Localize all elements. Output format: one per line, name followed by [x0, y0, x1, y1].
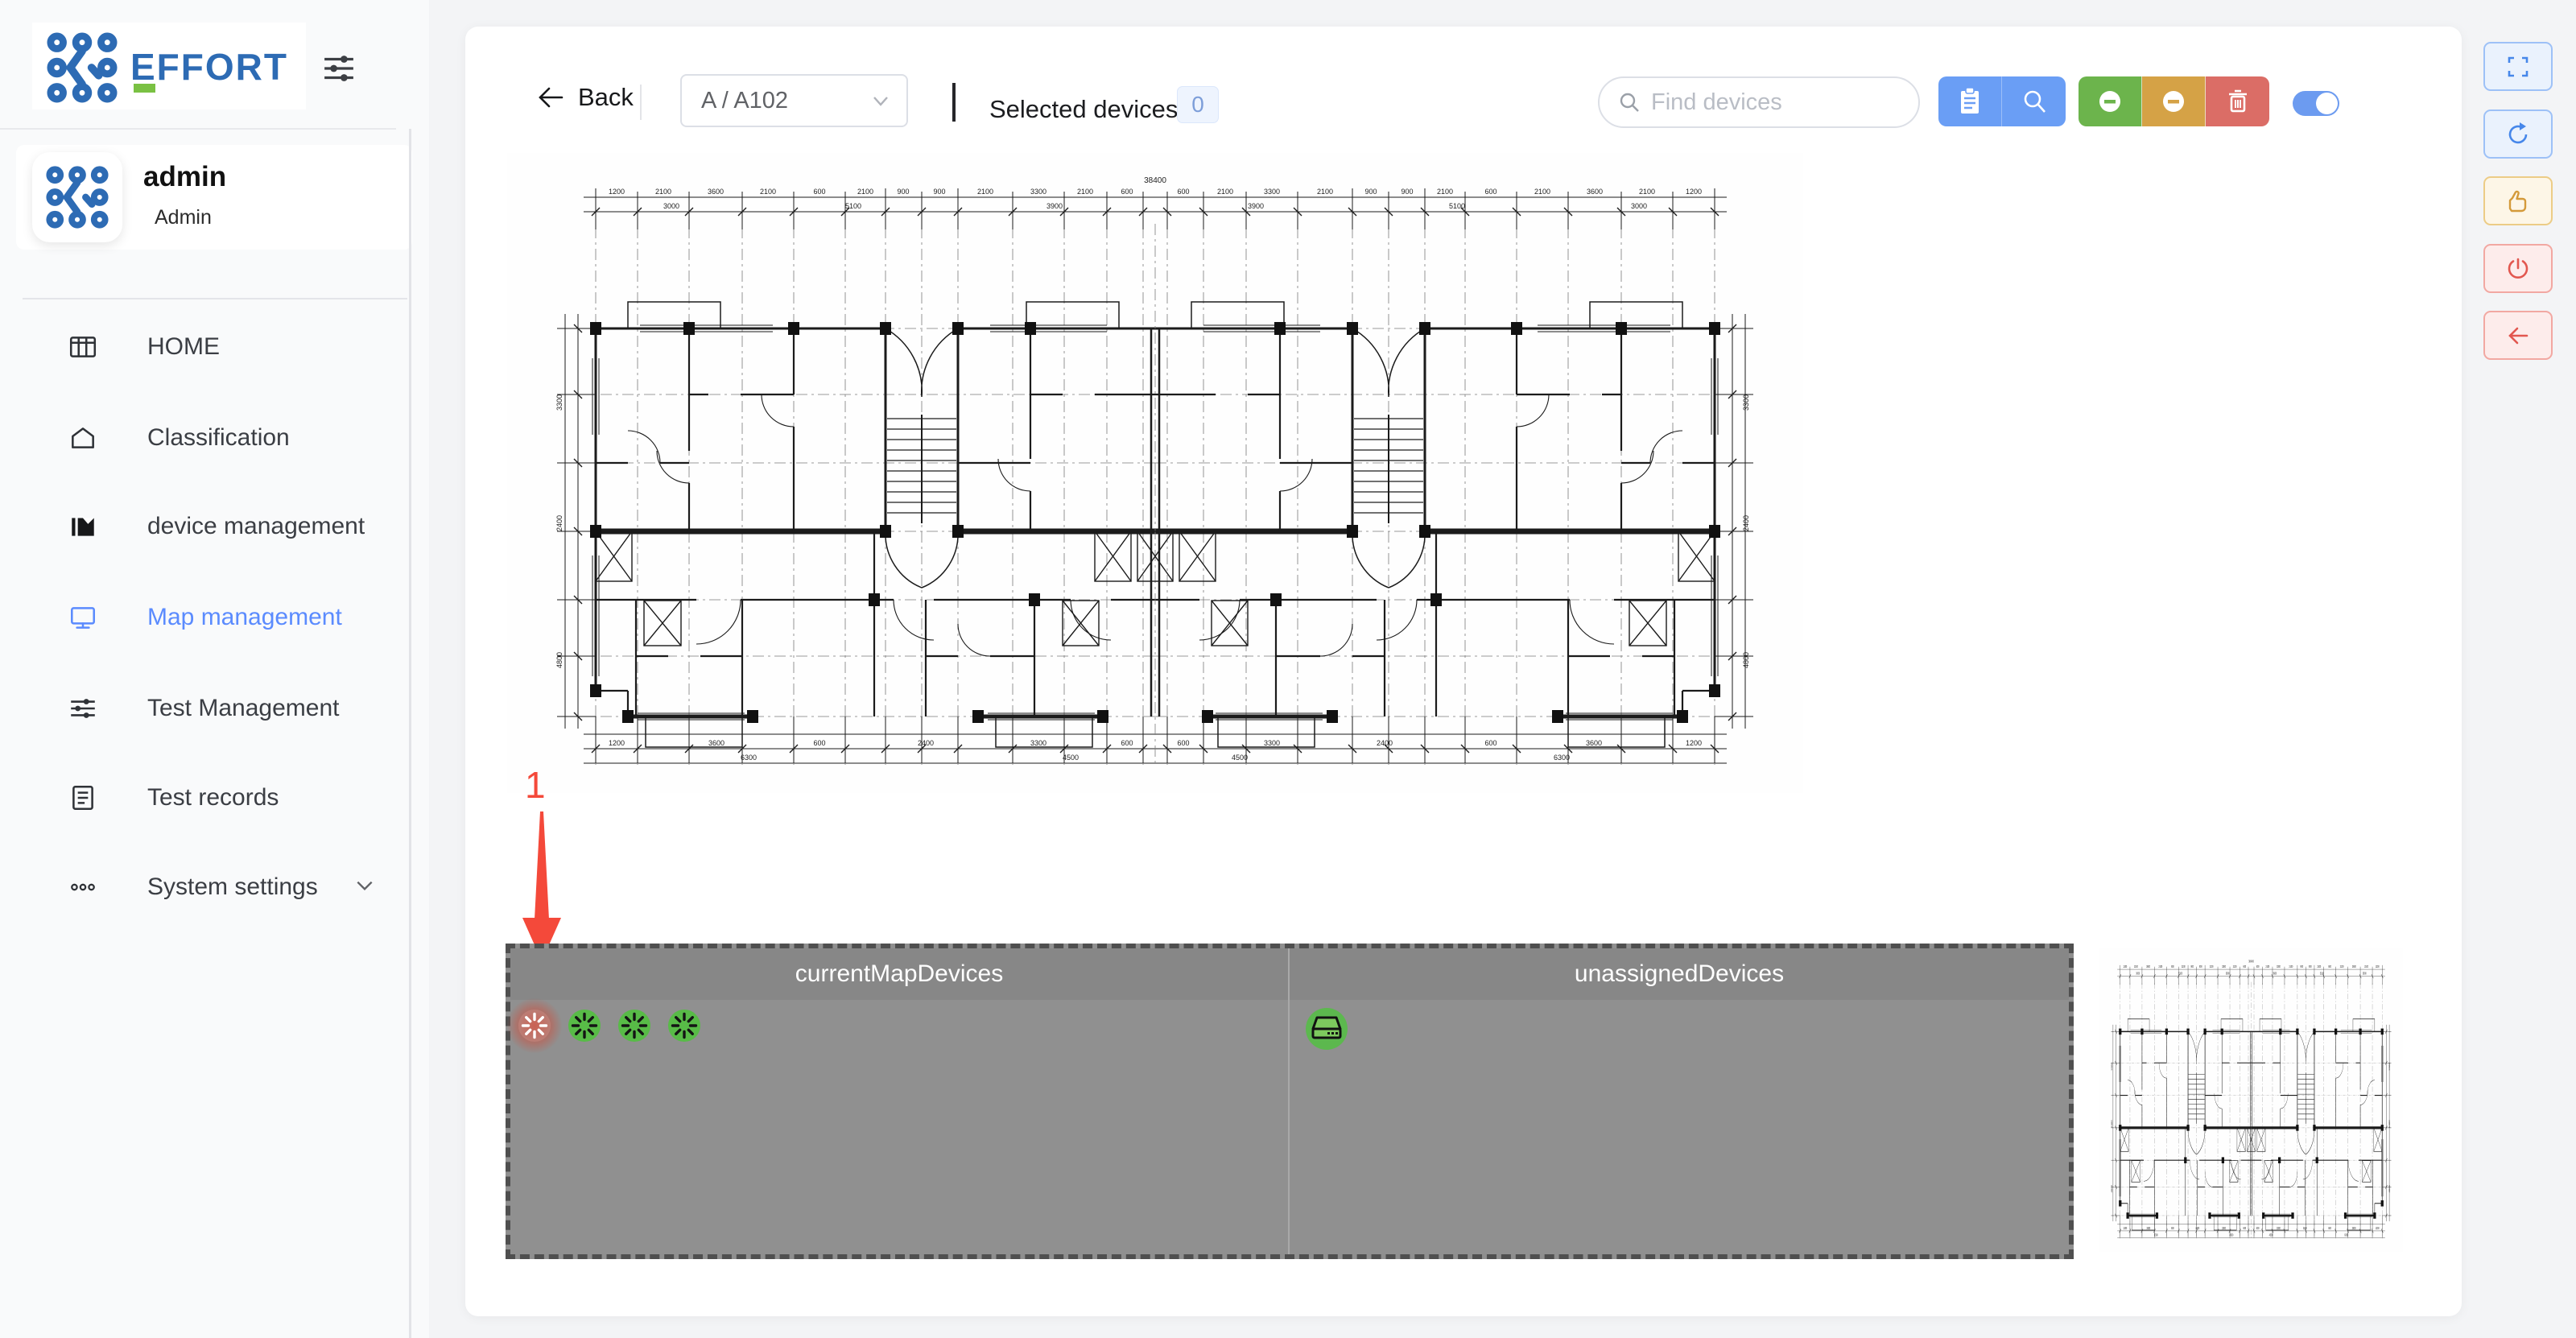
- minus-circle-icon: [2095, 87, 2124, 116]
- hard-drive-icon: [1308, 1013, 1345, 1045]
- sidebar-item-label: device management: [147, 513, 365, 540]
- hand-select-button[interactable]: [2483, 176, 2553, 225]
- power-icon: [2504, 254, 2533, 283]
- logo-text: EFFORT: [130, 45, 288, 89]
- spinner-icon: [668, 1010, 700, 1042]
- spinner-icon: [518, 1010, 551, 1042]
- sidebar-item-label: Map management: [147, 604, 342, 631]
- back-button[interactable]: Back: [535, 83, 634, 112]
- chevron-down-icon: [354, 878, 375, 897]
- clipboard-icon: [1956, 86, 1984, 117]
- ellipsis-icon: [67, 871, 99, 903]
- arrow-left-icon: [535, 84, 565, 111]
- device-drop-zone: currentMapDevices unassignedDevic: [506, 944, 2074, 1259]
- sidebar-item-label: HOME: [147, 333, 220, 361]
- sidebar-item-system-settings[interactable]: System settings: [0, 858, 407, 916]
- screen: { "sidebar": { "logo_text": "EFFORT", "u…: [0, 0, 2576, 1338]
- power-button[interactable]: [2483, 244, 2553, 293]
- user-role: Admin: [155, 206, 212, 229]
- toolbar-divider: [640, 85, 642, 120]
- exit-back-button[interactable]: [2483, 311, 2553, 360]
- effort-logo-icon: [47, 32, 118, 103]
- toggle-knob: [2316, 93, 2338, 114]
- app-logo[interactable]: EFFORT: [32, 23, 306, 109]
- unassigned-devices-panel[interactable]: unassignedDevices: [1290, 948, 2069, 1254]
- chevron-down-icon: [871, 95, 890, 112]
- sidebar-item-test-records[interactable]: Test records: [0, 769, 407, 827]
- sidebar-item-label: Test records: [147, 784, 279, 811]
- search-input[interactable]: [1651, 89, 1893, 116]
- table-grid-icon: [67, 331, 99, 363]
- avatar-logo-icon: [46, 166, 109, 229]
- fullscreen-icon: [2504, 52, 2533, 81]
- device-chart-icon: [67, 510, 99, 543]
- sidebar-item-classification[interactable]: Classification: [0, 409, 407, 467]
- delete-button[interactable]: [2206, 76, 2269, 126]
- logo-green-accent: [134, 84, 155, 93]
- spinner-icon: [618, 1010, 650, 1042]
- annotation-step-label: 1: [525, 763, 546, 807]
- sidebar-item-map-management[interactable]: Map management: [0, 588, 407, 646]
- area-select[interactable]: A / A102: [680, 74, 908, 127]
- disable-green-button[interactable]: [2079, 76, 2142, 126]
- disable-orange-button[interactable]: [2142, 76, 2206, 126]
- sidebar-item-home[interactable]: HOME: [0, 318, 407, 376]
- sidebar-scrollbar[interactable]: [409, 129, 411, 1338]
- floor-plan-image[interactable]: [507, 153, 1803, 793]
- back-label: Back: [578, 83, 634, 112]
- device-state-group: [2079, 76, 2269, 126]
- sidebar-item-label: System settings: [147, 873, 318, 901]
- sidebar-divider: [0, 128, 396, 130]
- selected-devices-label: Selected devices：: [989, 89, 1203, 125]
- hand-pointer-icon: [2504, 187, 2533, 216]
- sidebar-item-label: Classification: [147, 424, 290, 452]
- device-spinner-green[interactable]: [618, 1010, 650, 1042]
- selected-devices-count-badge: 0: [1177, 86, 1219, 123]
- arrow-left-icon: [2504, 321, 2533, 350]
- avatar: [32, 152, 122, 242]
- sidebar-item-label: Test Management: [147, 695, 339, 722]
- minus-circle-icon: [2159, 87, 2188, 116]
- nav-divider: [23, 298, 407, 299]
- device-spinner-green[interactable]: [568, 1010, 601, 1042]
- sliders-icon: [67, 692, 99, 725]
- device-spinner-gray-highlighted[interactable]: [518, 1010, 551, 1042]
- panel-title: currentMapDevices: [795, 960, 1003, 988]
- panel-header: currentMapDevices: [510, 948, 1288, 1000]
- home-outline-icon: [67, 422, 99, 454]
- user-card[interactable]: admin Admin: [16, 145, 412, 250]
- document-icon: [67, 782, 99, 814]
- panel-title: unassignedDevices: [1575, 960, 1784, 988]
- refresh-icon: [2504, 120, 2533, 149]
- clipboard-button[interactable]: [1938, 76, 2002, 126]
- area-select-value: A / A102: [701, 88, 788, 114]
- refresh-button[interactable]: [2483, 109, 2553, 159]
- device-spinner-green[interactable]: [668, 1010, 700, 1042]
- panel-body[interactable]: [510, 1000, 1288, 1254]
- monitor-icon: [67, 601, 99, 634]
- current-map-devices-panel[interactable]: currentMapDevices: [510, 948, 1288, 1254]
- magnifier-icon: [2020, 87, 2049, 116]
- search-devices-button[interactable]: [2002, 76, 2066, 126]
- device-action-group: [1938, 76, 2066, 126]
- sidebar-item-device-management[interactable]: device management: [0, 498, 407, 555]
- device-search: [1598, 76, 1920, 128]
- device-drive-green[interactable]: [1306, 1008, 1348, 1050]
- fullscreen-button[interactable]: [2483, 42, 2553, 91]
- map-management-panel: Back A / A102 Selected devices： 0: [465, 27, 2462, 1316]
- user-name: admin: [143, 161, 226, 193]
- spinner-icon: [568, 1010, 601, 1042]
- panel-body[interactable]: [1290, 1000, 2069, 1254]
- search-icon: [1617, 90, 1641, 114]
- edit-mode-toggle[interactable]: [2293, 91, 2339, 116]
- sidebar: EFFORT admin Admin HOME Classification: [0, 0, 429, 1338]
- collapse-settings-icon[interactable]: [320, 50, 357, 87]
- sidebar-item-test-management[interactable]: Test Management: [0, 679, 407, 737]
- trash-icon: [2223, 86, 2252, 117]
- panel-header: unassignedDevices: [1290, 948, 2069, 1000]
- vertical-bar-divider: [952, 83, 956, 122]
- floor-plan-thumbnail[interactable]: [2099, 948, 2403, 1252]
